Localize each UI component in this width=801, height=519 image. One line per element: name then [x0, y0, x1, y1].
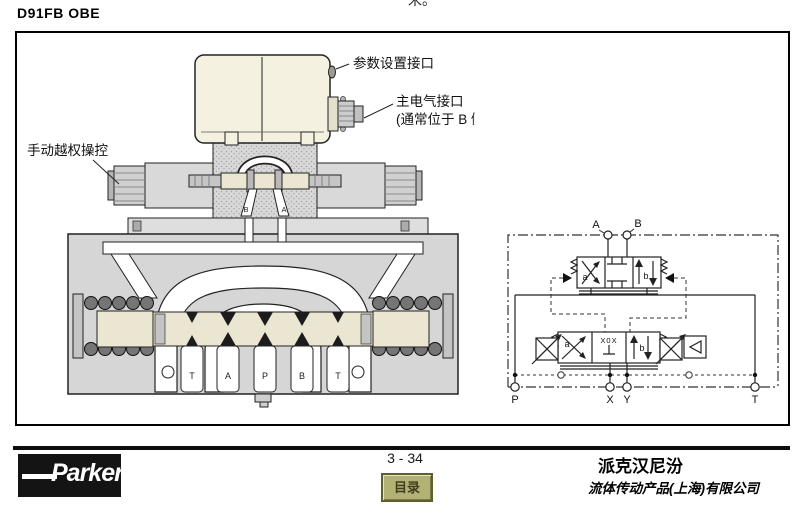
pilot-arrow-right [665, 273, 674, 283]
main-connector [328, 97, 363, 132]
schematic-port-p: P [511, 394, 518, 406]
catalog-page: 米。 D91FB OBE [0, 0, 801, 519]
schematic-port-x: X [606, 394, 614, 406]
port-label-b: B [299, 371, 305, 381]
port-label-p: P [262, 371, 268, 381]
drain-plug [255, 394, 271, 402]
pilot-port-label-b: B [243, 205, 248, 214]
parker-logo: Parker [18, 454, 121, 497]
callout-parameter-port: 参数设置接口 [353, 55, 434, 71]
company-brand: 派克汉尼汾 [598, 452, 683, 477]
pilot-stage-position-b: b [639, 343, 644, 353]
page-number: 3 - 34 [370, 450, 440, 466]
schematic-port-b: B [634, 218, 641, 230]
manual-override-knob-right [385, 166, 422, 205]
toc-button[interactable]: 目录 [381, 473, 433, 502]
main-stage-position-b: b [643, 271, 648, 281]
port-label-t1: T [189, 371, 195, 381]
main-stage-position-a: a [582, 272, 587, 282]
callout-main-connector-1: 主电气接口 [396, 93, 464, 109]
bolt-hole-left [162, 366, 174, 378]
pilot-arrow-left [563, 273, 572, 283]
schematic-port-t: T [752, 394, 759, 406]
callout-manual-override: 手动越权操控 [27, 142, 108, 158]
schematic-port-a: A [592, 219, 600, 231]
bolt-hole-right [352, 366, 364, 378]
pilot-valve: B A [108, 143, 422, 218]
clipped-paragraph-tail: 米。 [408, 0, 468, 8]
parameter-port [329, 66, 336, 78]
manual-override-knob-left [108, 166, 145, 205]
pilot-stage-valve [532, 332, 706, 369]
hydraulic-schematic: a b [493, 213, 793, 408]
callout-main-connector-2: (通常位于 B 侧) [396, 112, 475, 127]
page-title: D91FB OBE [17, 5, 100, 21]
pilot-spool-code: X0X [600, 336, 617, 345]
parker-logo-text: Parker [51, 459, 123, 488]
port-label-t2: T [335, 371, 341, 381]
port-label-a: A [225, 371, 231, 381]
pilot-port-label-a: A [281, 205, 286, 214]
valve-cross-section: T A P B T [15, 40, 475, 410]
schematic-port-y: Y [623, 394, 631, 406]
company-name: 流体传动产品(上海)有限公司 [588, 477, 759, 497]
pilot-stage-position-a: a [564, 339, 569, 349]
